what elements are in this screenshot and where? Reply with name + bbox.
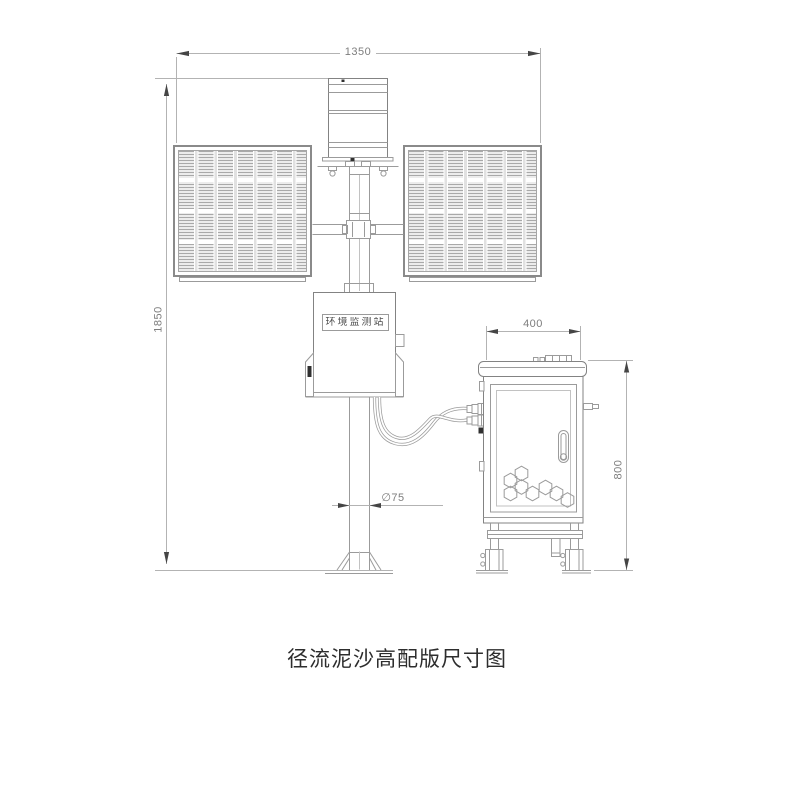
leg-block-left [481, 550, 503, 571]
flange-slot [308, 366, 312, 377]
hinge-bottom [480, 462, 485, 472]
dim-label-pole-diameter: ∅75 [373, 492, 413, 505]
crossarm [313, 221, 404, 239]
side-tab [396, 335, 405, 347]
leg-block-right [561, 550, 583, 571]
cabinet-lid [479, 362, 587, 377]
drawing-title: 径流泥沙高配版尺寸图 [277, 643, 517, 669]
dim-label-cabinet-width: 400 [513, 318, 553, 331]
dim-label-overall-height: 1850 [153, 300, 166, 340]
dim-label-cabinet-height: 800 [613, 450, 626, 490]
side-fitting [584, 404, 599, 410]
signal-cable [375, 397, 488, 445]
gauge-foot-left [329, 167, 337, 171]
control-cabinet [476, 356, 599, 574]
gauge-bracket-plate [323, 158, 394, 162]
hinge-top [480, 382, 485, 392]
crossarm-clamp [347, 221, 371, 239]
dim-cabinet-height [588, 361, 633, 571]
dim-cabinet-width [487, 326, 581, 360]
dim-label-overall-width: 1350 [340, 46, 376, 59]
rain-gauge [318, 79, 399, 177]
line-drawing [0, 0, 800, 800]
drain-pipe [552, 539, 561, 557]
gauge-top-port [342, 80, 345, 83]
station-nameplate: 环境监测站 [323, 317, 388, 330]
drawing-canvas: 1350 1850 400 800 ∅75 环境监测站 径流泥沙高配版尺寸图 [0, 0, 800, 800]
gauge-foot-right [380, 167, 388, 171]
station-box [306, 283, 405, 397]
right-flange [396, 353, 404, 397]
